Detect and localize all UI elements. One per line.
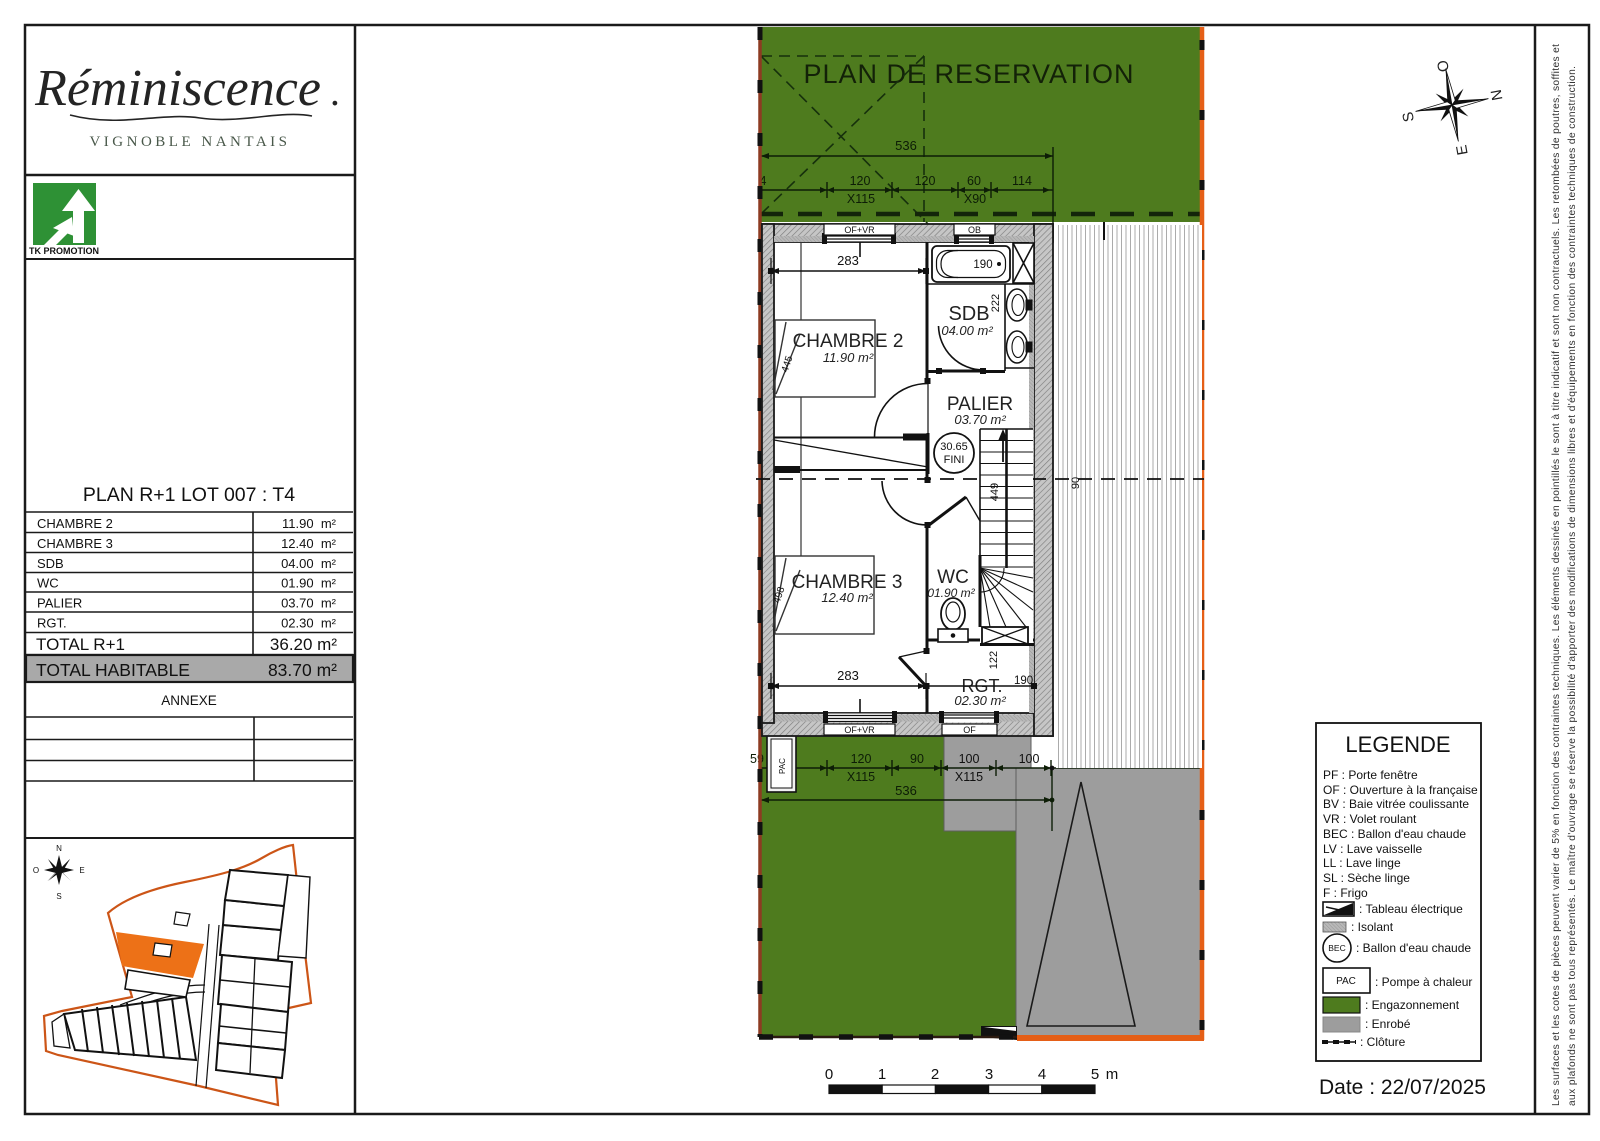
svg-text:5: 5	[1091, 1066, 1099, 1083]
svg-text:O: O	[33, 866, 39, 875]
svg-text:283: 283	[837, 668, 859, 683]
svg-text:190: 190	[973, 259, 992, 271]
svg-text:WC: WC	[37, 576, 59, 591]
svg-text:F : Frigo: F : Frigo	[1323, 886, 1368, 900]
svg-text:X115: X115	[847, 192, 875, 206]
svg-text:N: N	[56, 844, 62, 853]
svg-text:83.70 m²: 83.70 m²	[268, 660, 337, 680]
svg-text:: Engazonnement: : Engazonnement	[1365, 998, 1460, 1012]
svg-text:m: m	[1106, 1066, 1119, 1083]
svg-text:FINI: FINI	[944, 454, 965, 466]
svg-text:RGT.: RGT.	[37, 616, 67, 631]
svg-text:4: 4	[1038, 1066, 1046, 1083]
svg-text:536: 536	[895, 138, 917, 153]
svg-text:PAC: PAC	[1336, 976, 1356, 987]
svg-text:PALIER: PALIER	[37, 596, 82, 611]
svg-text:3: 3	[985, 1066, 993, 1083]
svg-text:90: 90	[910, 752, 924, 766]
svg-text:120: 120	[850, 174, 871, 188]
svg-text:222: 222	[990, 294, 1002, 312]
svg-text:BEC : Ballon d'eau chaude: BEC : Ballon d'eau chaude	[1323, 827, 1466, 841]
svg-text:100: 100	[1019, 752, 1040, 766]
svg-text:LEGENDE: LEGENDE	[1345, 732, 1450, 757]
svg-text:BV : Baie vitrée coulissante: BV : Baie vitrée coulissante	[1323, 797, 1469, 811]
svg-text:12.40 m²: 12.40 m²	[281, 536, 337, 551]
svg-text:OF+VR: OF+VR	[844, 725, 875, 735]
svg-text:X90: X90	[964, 192, 986, 206]
svg-text:SDB: SDB	[37, 556, 64, 571]
svg-text:04.00 m²: 04.00 m²	[941, 323, 993, 338]
svg-text:CHAMBRE 3: CHAMBRE 3	[37, 536, 113, 551]
svg-text:TK PROMOTION: TK PROMOTION	[29, 246, 99, 256]
svg-text:114: 114	[1012, 174, 1032, 188]
svg-text:VR : Volet roulant: VR : Volet roulant	[1323, 812, 1417, 826]
svg-text:S: S	[56, 892, 61, 901]
svg-text:BEC: BEC	[1328, 943, 1345, 953]
svg-text:01.90 m²: 01.90 m²	[281, 576, 337, 591]
svg-text:CHAMBRE 2: CHAMBRE 2	[37, 516, 113, 531]
svg-text:: Isolant: : Isolant	[1351, 920, 1394, 934]
svg-text:0: 0	[825, 1066, 833, 1083]
svg-text:E: E	[79, 866, 84, 875]
svg-text:36.20 m²: 36.20 m²	[270, 635, 337, 654]
svg-text:449: 449	[989, 483, 1001, 501]
svg-text:LL : Lave linge: LL : Lave linge	[1323, 856, 1401, 870]
svg-text:OF+VR: OF+VR	[844, 225, 875, 235]
svg-text:OF : Ouverture à la française: OF : Ouverture à la française	[1323, 783, 1478, 797]
svg-text:11.90 m²: 11.90 m²	[823, 350, 874, 365]
svg-text:1: 1	[878, 1066, 886, 1083]
svg-text:X115: X115	[847, 770, 875, 784]
svg-text:122: 122	[988, 651, 1000, 669]
svg-text:PLAN DE RESERVATION: PLAN DE RESERVATION	[803, 59, 1134, 89]
svg-text:: Enrobé: : Enrobé	[1365, 1017, 1411, 1031]
svg-text:: Pompe à chaleur: : Pompe à chaleur	[1375, 975, 1472, 989]
svg-text:12.40 m²: 12.40 m²	[821, 590, 873, 605]
svg-text:SL : Sèche linge: SL : Sèche linge	[1323, 871, 1410, 885]
svg-text:536: 536	[895, 783, 917, 798]
svg-text:ANNEXE: ANNEXE	[161, 693, 217, 708]
svg-text:02.30 m²: 02.30 m²	[281, 616, 337, 631]
svg-text:120: 120	[851, 752, 872, 766]
svg-text:04.00 m²: 04.00 m²	[281, 556, 337, 571]
svg-text:VIGNOBLE NANTAIS: VIGNOBLE NANTAIS	[89, 134, 290, 150]
svg-text:LV : Lave vaisselle: LV : Lave vaisselle	[1323, 842, 1422, 856]
svg-text:TOTAL R+1: TOTAL R+1	[36, 635, 125, 654]
svg-text:Réminiscence .: Réminiscence .	[34, 60, 341, 117]
svg-text:WC: WC	[937, 567, 969, 588]
svg-text:283: 283	[837, 253, 859, 268]
svg-text:01.90 m²: 01.90 m²	[927, 586, 975, 600]
svg-text:PF : Porte fenêtre: PF : Porte fenêtre	[1323, 768, 1418, 782]
svg-text:03.70 m²: 03.70 m²	[281, 596, 337, 611]
svg-text:TOTAL HABITABLE: TOTAL HABITABLE	[36, 660, 190, 680]
svg-text:: Ballon d'eau chaude: : Ballon d'eau chaude	[1356, 941, 1471, 955]
svg-text:Date : 22/07/2025: Date : 22/07/2025	[1319, 1076, 1486, 1099]
svg-text:CHAMBRE 2: CHAMBRE 2	[793, 331, 904, 352]
svg-text:60: 60	[967, 174, 981, 188]
svg-text:11.90 m²: 11.90 m²	[282, 516, 337, 531]
svg-text:Les surfaces et les cotes de p: Les surfaces et les cotes de pièces peuv…	[1551, 44, 1562, 1106]
svg-text:190: 190	[1014, 675, 1033, 687]
svg-text:aux plafonds ne sont pas tous: aux plafonds ne sont pas tous représenté…	[1567, 66, 1578, 1106]
svg-text:: Clôture: : Clôture	[1360, 1035, 1406, 1049]
svg-text:OF: OF	[963, 725, 976, 735]
svg-text:X115: X115	[955, 770, 983, 784]
svg-text:02.30 m²: 02.30 m²	[954, 693, 1006, 708]
svg-text:PAC: PAC	[778, 758, 787, 774]
svg-text:OB: OB	[968, 225, 981, 235]
svg-text:: Tableau électrique: : Tableau électrique	[1359, 902, 1463, 916]
svg-text:2: 2	[931, 1066, 939, 1083]
svg-text:59: 59	[750, 752, 764, 766]
svg-text:03.70 m²: 03.70 m²	[954, 412, 1006, 427]
svg-text:30.65: 30.65	[940, 441, 968, 453]
svg-text:SDB: SDB	[948, 303, 989, 325]
svg-text:100: 100	[959, 752, 980, 766]
svg-text:120: 120	[915, 174, 936, 188]
svg-text:PLAN R+1 LOT 007 : T4: PLAN R+1 LOT 007 : T4	[83, 484, 295, 506]
